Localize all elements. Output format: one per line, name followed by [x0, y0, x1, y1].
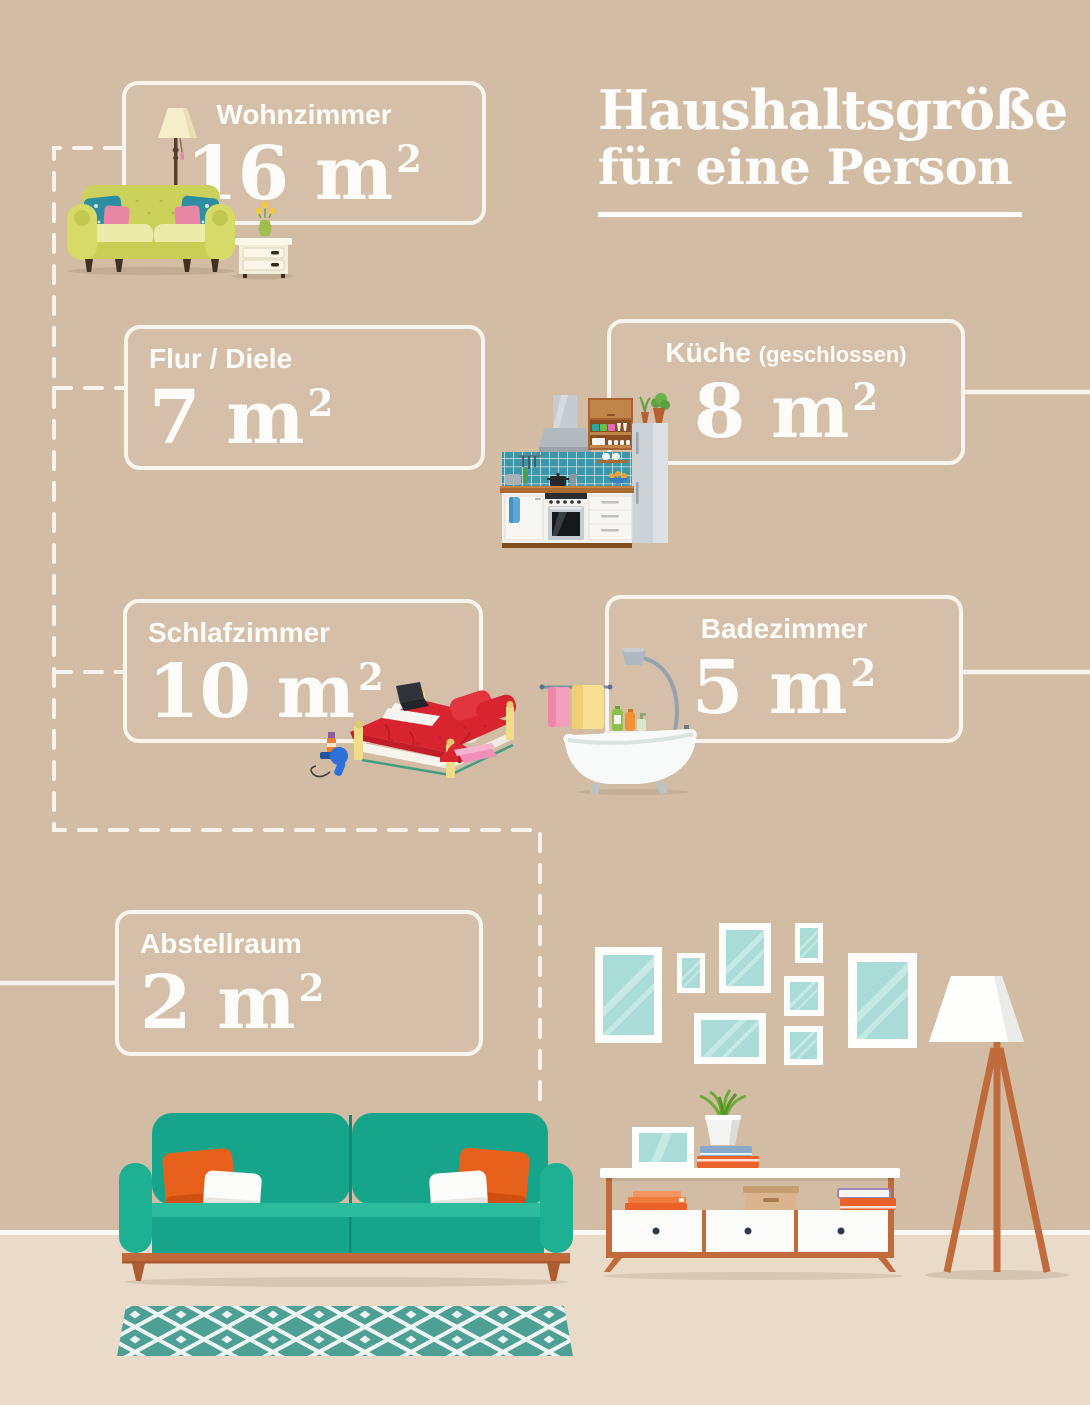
frame-glass [790, 982, 818, 1010]
floor-lamp-illustration [920, 972, 1080, 1284]
title-line-2: für eine Person [598, 141, 1058, 194]
room-label-text: Abstellraum [140, 928, 302, 959]
shelf-items-icon [625, 1186, 896, 1210]
page-title: Haushaltsgröße für eine Person [598, 82, 1058, 217]
sideboard-top-icon [600, 1168, 900, 1178]
picture-frame [784, 976, 824, 1016]
room-size-sup: 2 [308, 381, 334, 425]
picture-frame [595, 947, 662, 1043]
sofa-seat-icon [152, 1203, 544, 1217]
frame-glass [603, 955, 654, 1035]
picture-frame [719, 923, 771, 993]
room-size-sup: 2 [850, 651, 876, 695]
room-label-flur-diele: Flur / Diele [149, 342, 481, 376]
frame-glass [682, 958, 700, 988]
title-line-1: Haushaltsgröße [598, 82, 1058, 139]
room-size-text: 8 m [694, 369, 850, 455]
title-underline [598, 212, 1022, 217]
books-icon [697, 1146, 759, 1168]
bathroom-illustration [538, 645, 703, 797]
room-size-text: 2 m [140, 960, 296, 1046]
room-label-text: Flur / Diele [149, 343, 292, 374]
room-size-text: 5 m [692, 645, 848, 731]
picture-frame [677, 953, 705, 993]
picture-frame [784, 1026, 823, 1065]
room-label-text: Badezimmer [701, 613, 868, 644]
room-card-abstellraum: Abstellraum 2 m2 [115, 910, 483, 1056]
sofa-arm-icon [119, 1163, 152, 1253]
room-label-text: Schlafzimmer [148, 617, 330, 648]
room-label-abstellraum: Abstellraum [140, 927, 479, 961]
bathtub-icon [563, 725, 696, 795]
tabletop-frame-icon [632, 1127, 694, 1168]
frame-glass [857, 962, 908, 1039]
picture-frame [795, 923, 823, 963]
room-label-badezimmer: Badezimmer [609, 612, 959, 646]
room-size-sup: 2 [852, 375, 878, 419]
potted-plant-icon [700, 1090, 746, 1145]
plant-icon [640, 393, 670, 423]
living-room-illustration [55, 100, 300, 285]
fridge-icon [632, 423, 668, 543]
room-label-text: Küche [665, 337, 751, 368]
rug-illustration [112, 1302, 582, 1362]
kettle-icon [505, 474, 521, 485]
sofa-leg-icon [547, 1263, 560, 1281]
picture-frame [848, 953, 917, 1048]
sideboard-illustration [593, 1088, 918, 1283]
frame-glass [726, 930, 764, 986]
bedroom-bed-illustration [300, 648, 525, 783]
frame-glass [790, 1032, 817, 1059]
wall-cabinet-icon [588, 398, 633, 450]
kitchen-illustration [495, 390, 675, 552]
picture-frame [694, 1013, 766, 1064]
room-size-sup: 2 [299, 966, 325, 1010]
floor-lamp-stem-icon [174, 136, 178, 192]
side-table-icon [235, 202, 292, 279]
frame-glass [800, 928, 818, 958]
room-size-abstellraum: 2 m2 [140, 965, 479, 1043]
room-label-schlafzimmer: Schlafzimmer [148, 616, 479, 650]
room-size-sup: 2 [396, 137, 422, 181]
infographic-canvas: Haushaltsgröße für eine Person Wohnzimme… [0, 0, 1090, 1405]
shower-head-icon [622, 651, 646, 665]
room-size-flur-diele: 7 m2 [149, 380, 481, 458]
room-card-flur-diele: Flur / Diele 7 m2 [124, 325, 485, 470]
room-label-note: (geschlossen) [759, 342, 907, 367]
stove-icon [545, 493, 587, 540]
room-size-text: 7 m [149, 375, 305, 461]
sofa-arm-icon [540, 1163, 573, 1253]
teal-sofa-illustration [108, 1103, 583, 1293]
lamp-tripod-icon [947, 1038, 1047, 1272]
sofa-leg-icon [132, 1263, 145, 1281]
room-label-kueche: Küche (geschlossen) [611, 336, 961, 370]
frame-glass [701, 1020, 759, 1057]
